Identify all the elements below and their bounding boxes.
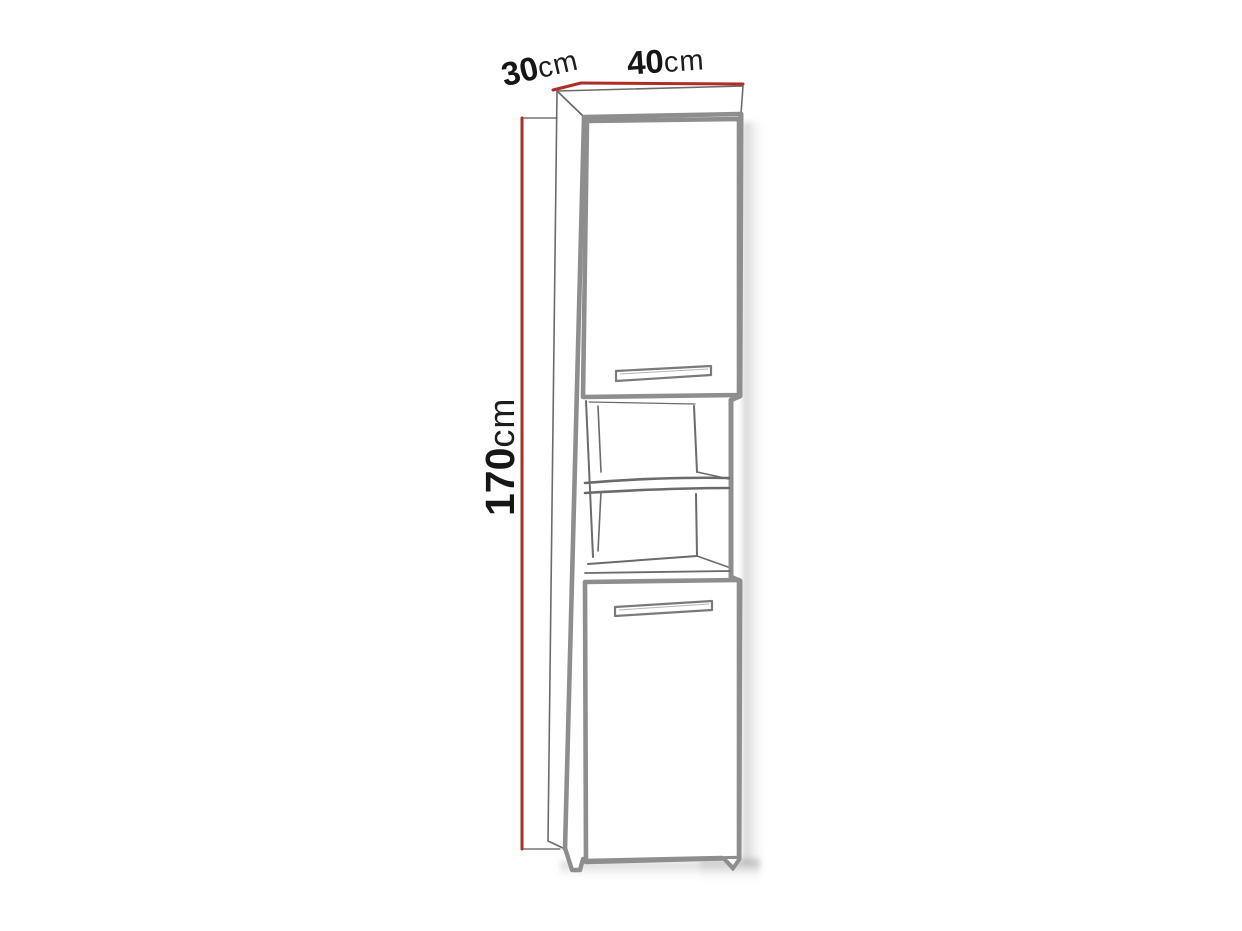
- niche-left-back-edge-lower: [598, 492, 601, 551]
- niche-bottom-edge: [588, 556, 697, 564]
- plinth-bottom-edge: [583, 858, 722, 861]
- niche-top-inner-edge: [589, 402, 695, 404]
- cabinet-diagram: [0, 0, 1242, 931]
- product-dimension-image: 30cm 40cm 170cm: [0, 0, 1242, 931]
- width-label: 40cm: [626, 41, 706, 80]
- niche-left-inner-edge: [586, 401, 593, 557]
- width-unit: cm: [663, 44, 706, 79]
- height-label: 170cm: [480, 401, 521, 516]
- bottom-door: [585, 580, 739, 862]
- width-value: 40: [626, 42, 665, 81]
- niche-bottom-right-corner: [697, 556, 728, 567]
- depth-dimension-line: [553, 83, 581, 90]
- open-shelf-niche: [585, 401, 730, 573]
- shelf-top-edge: [585, 478, 729, 483]
- height-value: 170: [477, 448, 523, 516]
- top-door: [583, 119, 739, 397]
- width-dimension-line: [581, 83, 743, 84]
- niche-right-back-edge: [694, 406, 697, 472]
- niche-bottom-front-edge: [585, 571, 730, 573]
- niche-right-back-edge-lower: [696, 494, 697, 556]
- shelf-front-edge: [585, 488, 729, 493]
- niche-left-back-edge: [598, 406, 601, 472]
- height-unit: cm: [481, 398, 522, 448]
